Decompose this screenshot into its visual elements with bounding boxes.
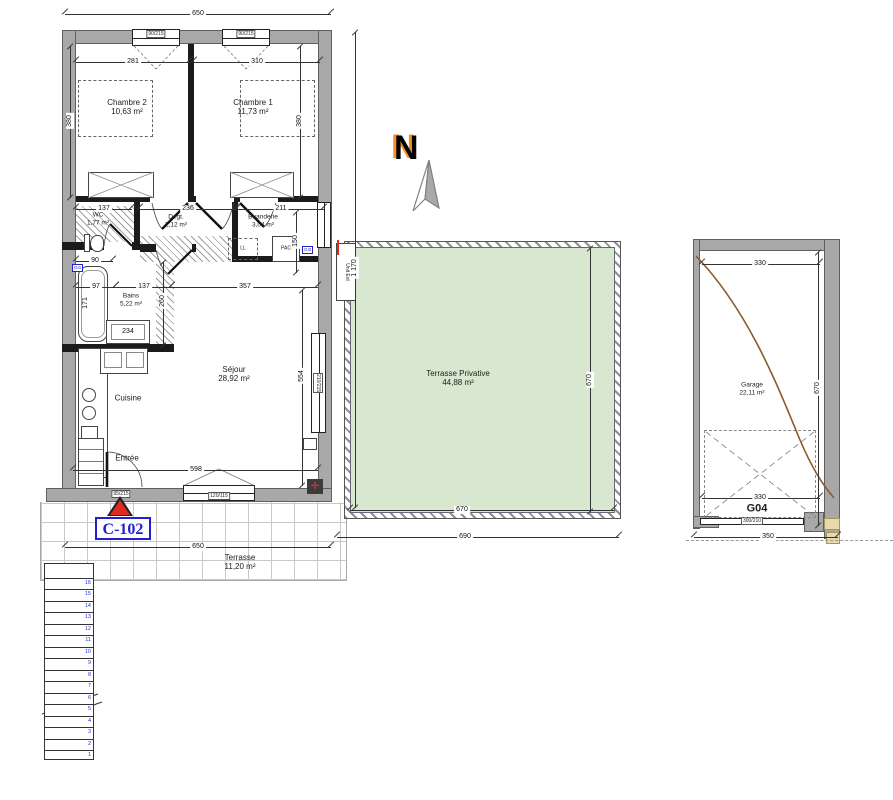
stair-step: 3	[45, 727, 93, 728]
dim-bains-offset: 97	[90, 283, 102, 291]
stair-step: 8	[45, 670, 93, 671]
room-name: Garage	[741, 382, 763, 389]
room-name: Terrasse Privative	[426, 369, 490, 378]
stair-step: 1	[45, 750, 93, 751]
wall-hall-2	[188, 196, 196, 202]
room-name: WC	[93, 212, 104, 219]
room-name: Cuisine	[115, 394, 142, 403]
stair-step: 6	[45, 693, 93, 694]
stair-step: 10	[45, 647, 93, 648]
garage-door-label: 300/210	[741, 517, 763, 525]
property-line	[686, 540, 893, 541]
floor-plan: 90/215 90/215 120/115 210/215 95/215 LL …	[0, 0, 893, 800]
dim-chambre2-width: 281	[125, 58, 141, 66]
dim-total-height: 1 170	[351, 257, 359, 279]
wall-bains-north-2	[192, 244, 196, 252]
unit-badge: C-102	[95, 517, 151, 540]
exterior-step-1	[824, 518, 840, 530]
step-number: 8	[88, 672, 91, 679]
room-area: 5,22 m²	[120, 300, 142, 307]
dim-terrasse-outer-width: 690	[457, 533, 473, 541]
step-number: 4	[88, 718, 91, 725]
dim-chambre2-height: 380	[66, 113, 74, 129]
step-number: 1	[88, 752, 91, 759]
room-name: Terrasse	[225, 553, 256, 562]
room-area: 1,77 m²	[87, 219, 109, 226]
dim-bains-height: 260	[159, 293, 167, 309]
dim-bottom-width: 650	[190, 543, 206, 551]
step-number: 14	[85, 603, 91, 610]
label-garage: Garage 22,11 m²	[739, 382, 764, 397]
toilet-bowl	[90, 235, 104, 252]
sink-basin-2	[126, 352, 144, 368]
wardrobe-chambre1	[230, 172, 294, 198]
room-name: Chambre 1	[233, 98, 273, 107]
room-area: 28,92 m²	[218, 374, 250, 383]
label-sejour: Séjour 28,92 m²	[218, 365, 250, 383]
window-glass-line	[324, 203, 325, 247]
stair-step: 9	[45, 658, 93, 659]
room-name: Entrée	[115, 454, 139, 463]
dim-sejour-height: 554	[298, 368, 306, 384]
step-number: 11	[85, 637, 91, 644]
stair-step: 5	[45, 704, 93, 705]
garage-wall-north	[693, 239, 840, 251]
dim-wc-depth: 90	[89, 257, 101, 265]
technical-point-icon: ✛	[307, 479, 323, 494]
dim-garage-height: 670	[814, 380, 822, 396]
wall-bains-north-1	[140, 244, 156, 252]
dim-sejour-top-width: 357	[237, 283, 253, 291]
dim-vanity-width: 234	[120, 328, 136, 336]
dim-bains-width: 137	[136, 283, 152, 291]
dim-garage-width-bottom: 330	[752, 494, 768, 502]
label-buanderie: Buanderie 3,04 m²	[248, 214, 278, 229]
dim-buanderie-width: 211	[273, 205, 288, 213]
dim-garage-outer-width: 350	[760, 533, 776, 541]
compass-north-label: N	[394, 130, 419, 166]
wall-north	[62, 30, 332, 44]
step-number: 6	[88, 695, 91, 702]
label-wc: WC 1,77 m²	[87, 212, 109, 227]
dim-terrasse-width: 670	[454, 506, 470, 514]
gi2-tag: GI2	[302, 246, 313, 254]
unit-ext-label: Unit Ext	[342, 263, 350, 281]
dim-sejour-width: 598	[188, 466, 204, 474]
entry-closet	[78, 438, 104, 486]
heat-pump-label: PAC	[281, 245, 291, 253]
wardrobe-chambre2	[88, 172, 154, 198]
stair-step: 12	[45, 624, 93, 625]
dim-chambre1-height: 380	[296, 113, 304, 129]
label-chambre1: Chambre 1 11,73 m²	[233, 98, 273, 116]
wall-chambre-divider	[188, 44, 194, 198]
room-area: 3,04 m²	[252, 221, 274, 228]
garage-wall-west	[693, 239, 700, 529]
label-bains: Bains 5,22 m²	[120, 293, 142, 308]
wall-unit	[303, 438, 317, 450]
dim-line	[302, 290, 303, 486]
stair-step: 2	[45, 739, 93, 740]
step-number: 10	[85, 649, 91, 656]
stair-step: 13	[45, 612, 93, 613]
dim-terrasse-height: 670	[586, 372, 594, 388]
step-number: 7	[88, 683, 91, 690]
garage-code: G04	[747, 505, 768, 514]
dim-buanderie-height: 150	[292, 233, 300, 249]
kitchen-sink-bowl-2	[82, 406, 96, 420]
step-number: 16	[85, 580, 91, 587]
step-number: 3	[88, 729, 91, 736]
step-number: 15	[85, 591, 91, 598]
label-chambre2: Chambre 2 10,63 m²	[107, 98, 147, 116]
window-chambre2-label: 90/215	[146, 30, 165, 38]
room-name: Buanderie	[248, 214, 278, 221]
bay-window-label: 210/215	[313, 373, 323, 393]
room-name: Séjour	[222, 365, 245, 374]
room-area: 10,63 m²	[111, 107, 143, 116]
step-number: 2	[88, 741, 91, 748]
label-entree: Entrée	[115, 454, 139, 463]
label-terrasse-privative: Terrasse Privative 44,88 m²	[426, 369, 490, 387]
dim-degt-width: 236	[180, 205, 196, 213]
step-number: 5	[88, 706, 91, 713]
stair-step: 4	[45, 716, 93, 717]
room-area: 22,11 m²	[739, 389, 764, 396]
wall-wc-south-2	[132, 242, 140, 250]
label-terrasse: Terrasse 11,20 m²	[225, 553, 256, 571]
dim-garage-width-top: 330	[752, 260, 768, 268]
unit-marker-icon	[110, 500, 130, 515]
stair-step: 11	[45, 635, 93, 636]
stair-step: 16	[45, 578, 93, 579]
step-number: 13	[85, 614, 91, 621]
window-chambre1-label: 90/215	[236, 30, 255, 38]
dim-line	[337, 537, 619, 538]
step-number: 12	[85, 626, 91, 633]
room-area: 2,12 m²	[165, 221, 187, 228]
window-sejour-south-label: 120/115	[208, 492, 230, 500]
step-number: 9	[88, 660, 91, 667]
dim-top-width: 650	[190, 10, 206, 18]
room-name: Bains	[123, 293, 139, 300]
label-cuisine: Cuisine	[115, 394, 142, 403]
garage-wall-east	[824, 239, 840, 539]
stair-step: 15	[45, 589, 93, 590]
room-name: Degt.	[168, 214, 184, 221]
gi1-tag: GI1	[72, 264, 83, 272]
sink-basin-1	[104, 352, 122, 368]
room-name: Chambre 2	[107, 98, 147, 107]
washing-machine-label: LL	[240, 245, 246, 253]
label-degagement: Degt. 2,12 m²	[165, 214, 187, 229]
room-area: 11,73 m²	[238, 107, 269, 116]
dim-chambre1-width: 310	[249, 58, 265, 66]
stair-step: 7	[45, 681, 93, 682]
dim-tub-length: 171	[82, 295, 90, 311]
room-area: 11,20 m²	[225, 562, 256, 571]
dim-line	[350, 510, 614, 511]
stairs: 16 15 14 13 12 11 10 9 8 7 6 5 4 3 2 1	[44, 563, 94, 760]
stair-step: 14	[45, 601, 93, 602]
room-area: 44,88 m²	[442, 378, 474, 387]
kitchen-sink-bowl-1	[82, 388, 96, 402]
